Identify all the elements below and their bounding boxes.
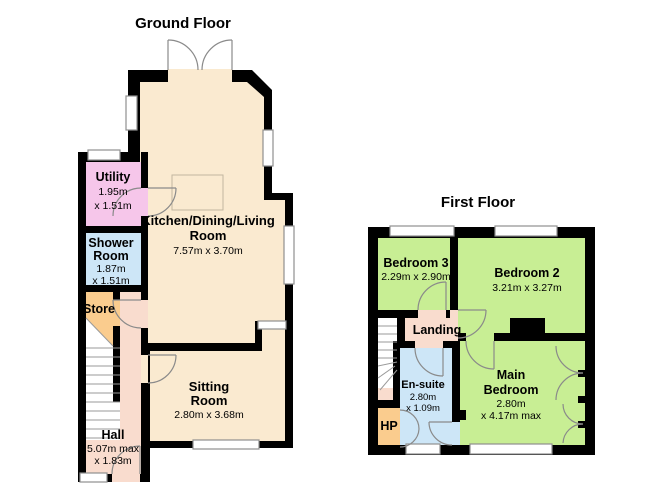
kitchen-sitting-hatch-window — [258, 321, 286, 329]
ground-floor-title: Ground Floor — [135, 15, 231, 32]
label-shower: Shower Room 1.87m x 1.51m — [88, 236, 133, 287]
svg-text:7.57m x 3.70m: 7.57m x 3.70m — [173, 245, 243, 257]
svg-text:Hall: Hall — [102, 428, 125, 442]
ensuite-window — [406, 444, 440, 454]
svg-text:HP: HP — [380, 419, 397, 433]
label-landing: Landing — [413, 323, 462, 337]
svg-text:2.80m x 3.68m: 2.80m x 3.68m — [174, 409, 244, 421]
kitchen-left-window — [126, 96, 137, 130]
svg-text:Main: Main — [497, 368, 525, 382]
label-utility: Utility 1.95m x 1.51m — [94, 170, 132, 212]
first-floor-plan: First Floor Bedroom 3 2.29m x 2.90m Bedr… — [368, 194, 595, 455]
hall-window — [80, 473, 107, 482]
french-door-left-arc — [168, 40, 198, 70]
svg-text:Room: Room — [190, 228, 227, 243]
first-floor-title: First Floor — [441, 194, 515, 211]
floorplan-page: Ground Floor Kitchen/Dining/Living Room … — [0, 0, 668, 486]
svg-text:Sitting: Sitting — [189, 379, 229, 394]
label-store: Store — [83, 302, 115, 316]
svg-text:2.29m x 2.90m: 2.29m x 2.90m — [381, 271, 451, 283]
kitchen-right-upper-window — [263, 130, 273, 166]
svg-text:x 4.17m max: x 4.17m max — [481, 410, 542, 422]
room-hall-corridor — [120, 292, 141, 440]
label-bedroom3: Bedroom 3 2.29m x 2.90m — [381, 256, 451, 283]
svg-text:Store: Store — [83, 302, 115, 316]
bedroom3-window — [390, 226, 454, 236]
svg-text:En-suite: En-suite — [401, 379, 444, 391]
svg-text:Shower: Shower — [88, 236, 133, 250]
utility-window — [88, 150, 120, 160]
svg-text:x 1.51m: x 1.51m — [94, 200, 132, 212]
svg-text:Bedroom 3: Bedroom 3 — [383, 256, 448, 270]
svg-text:Kitchen/Dining/Living: Kitchen/Dining/Living — [141, 213, 275, 228]
floorplan-drawing: Ground Floor Kitchen/Dining/Living Room … — [0, 0, 668, 486]
svg-text:Bedroom 2: Bedroom 2 — [494, 266, 559, 280]
svg-text:Room: Room — [191, 393, 228, 408]
svg-text:Utility: Utility — [96, 170, 131, 184]
french-door-right-arc — [202, 40, 232, 70]
svg-text:Bedroom: Bedroom — [484, 383, 539, 397]
main-bedroom-window — [470, 444, 552, 454]
svg-text:1.87m: 1.87m — [96, 263, 125, 275]
svg-text:x 1.09m: x 1.09m — [406, 403, 440, 414]
svg-text:x 1.51m: x 1.51m — [92, 275, 130, 287]
ground-floor-plan: Ground Floor Kitchen/Dining/Living Room … — [78, 15, 294, 482]
svg-text:Landing: Landing — [413, 323, 462, 337]
svg-text:3.21m x 3.27m: 3.21m x 3.27m — [492, 282, 562, 294]
sitting-room-window — [193, 440, 259, 449]
svg-text:5.07m max: 5.07m max — [87, 443, 140, 455]
bedroom2-window — [495, 226, 557, 236]
svg-text:Room: Room — [93, 249, 128, 263]
kitchen-right-lower-window — [284, 226, 294, 284]
svg-text:2.80m: 2.80m — [496, 398, 525, 410]
label-hp: HP — [380, 419, 397, 433]
svg-text:2.80m: 2.80m — [410, 392, 436, 403]
svg-text:1.95m: 1.95m — [98, 186, 127, 198]
svg-text:x 1.83m: x 1.83m — [94, 455, 132, 467]
